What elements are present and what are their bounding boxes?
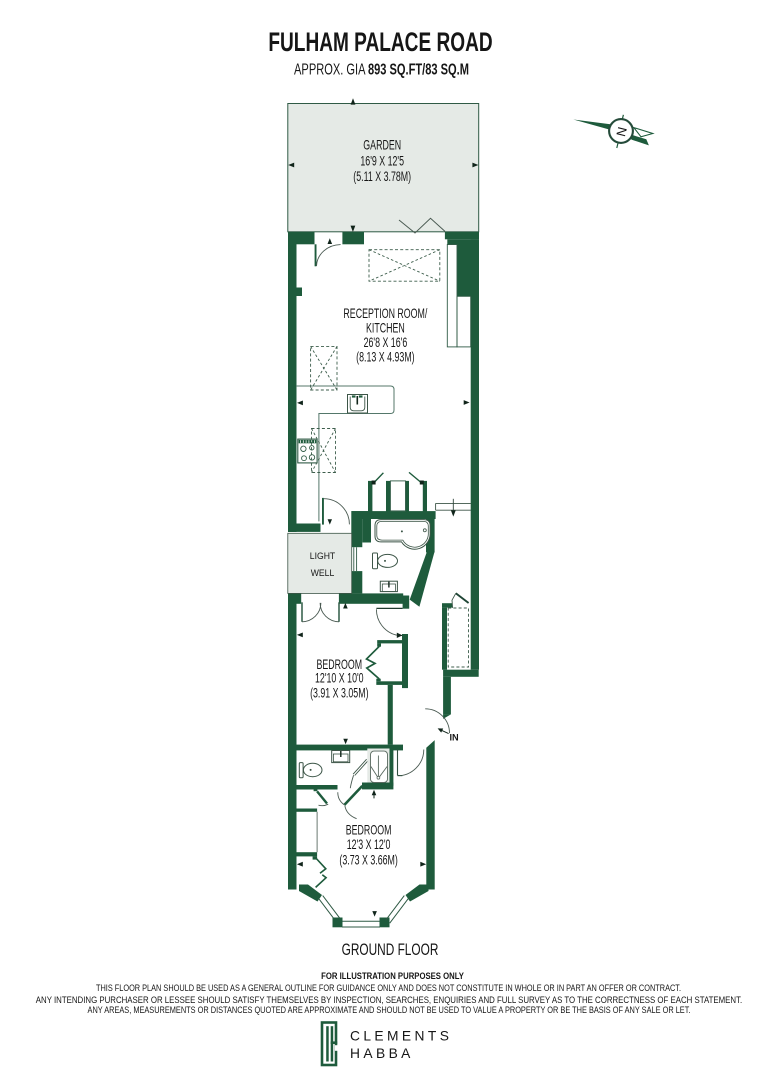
svg-text:CLEMENTS: CLEMENTS xyxy=(350,1029,452,1044)
svg-text:WELL: WELL xyxy=(311,568,335,579)
svg-text:APPROX. GIA 893 SQ.FT/83 SQ.M: APPROX. GIA 893 SQ.FT/83 SQ.M xyxy=(294,61,469,78)
svg-text:RECEPTION ROOM/: RECEPTION ROOM/ xyxy=(343,307,428,321)
svg-text:HABBA: HABBA xyxy=(350,1046,414,1061)
svg-text:FOR ILLUSTRATION PURPOSES ONLY: FOR ILLUSTRATION PURPOSES ONLY xyxy=(321,970,464,981)
svg-text:FULHAM PALACE ROAD: FULHAM PALACE ROAD xyxy=(268,27,492,57)
svg-text:GROUND FLOOR: GROUND FLOOR xyxy=(342,941,439,959)
svg-text:(3.91 X 3.05M): (3.91 X 3.05M) xyxy=(310,687,369,701)
svg-text:LIGHT: LIGHT xyxy=(310,550,336,561)
svg-text:(8.13 X 4.93M): (8.13 X 4.93M) xyxy=(356,351,415,365)
svg-text:ANY AREAS, MEASUREMENTS OR DIS: ANY AREAS, MEASUREMENTS OR DISTANCES QUO… xyxy=(88,1004,691,1015)
svg-text:12'3 X 12'0: 12'3 X 12'0 xyxy=(347,838,391,852)
svg-text:(3.73 X 3.66M): (3.73 X 3.66M) xyxy=(339,854,398,868)
svg-text:BEDROOM: BEDROOM xyxy=(316,658,362,672)
svg-text:KITCHEN: KITCHEN xyxy=(366,322,405,336)
svg-text:BEDROOM: BEDROOM xyxy=(346,824,392,838)
svg-text:12'10 X 10'0: 12'10 X 10'0 xyxy=(315,672,364,686)
svg-text:(5.11 X 3.78M): (5.11 X 3.78M) xyxy=(353,170,411,184)
svg-text:THIS FLOOR PLAN SHOULD BE USED: THIS FLOOR PLAN SHOULD BE USED AS A GENE… xyxy=(96,982,681,993)
svg-text:IN: IN xyxy=(450,733,460,743)
svg-text:26'8 X 16'6: 26'8 X 16'6 xyxy=(364,336,408,350)
svg-text:16'9 X 12'5: 16'9 X 12'5 xyxy=(360,155,404,169)
svg-text:GARDEN: GARDEN xyxy=(363,139,401,153)
